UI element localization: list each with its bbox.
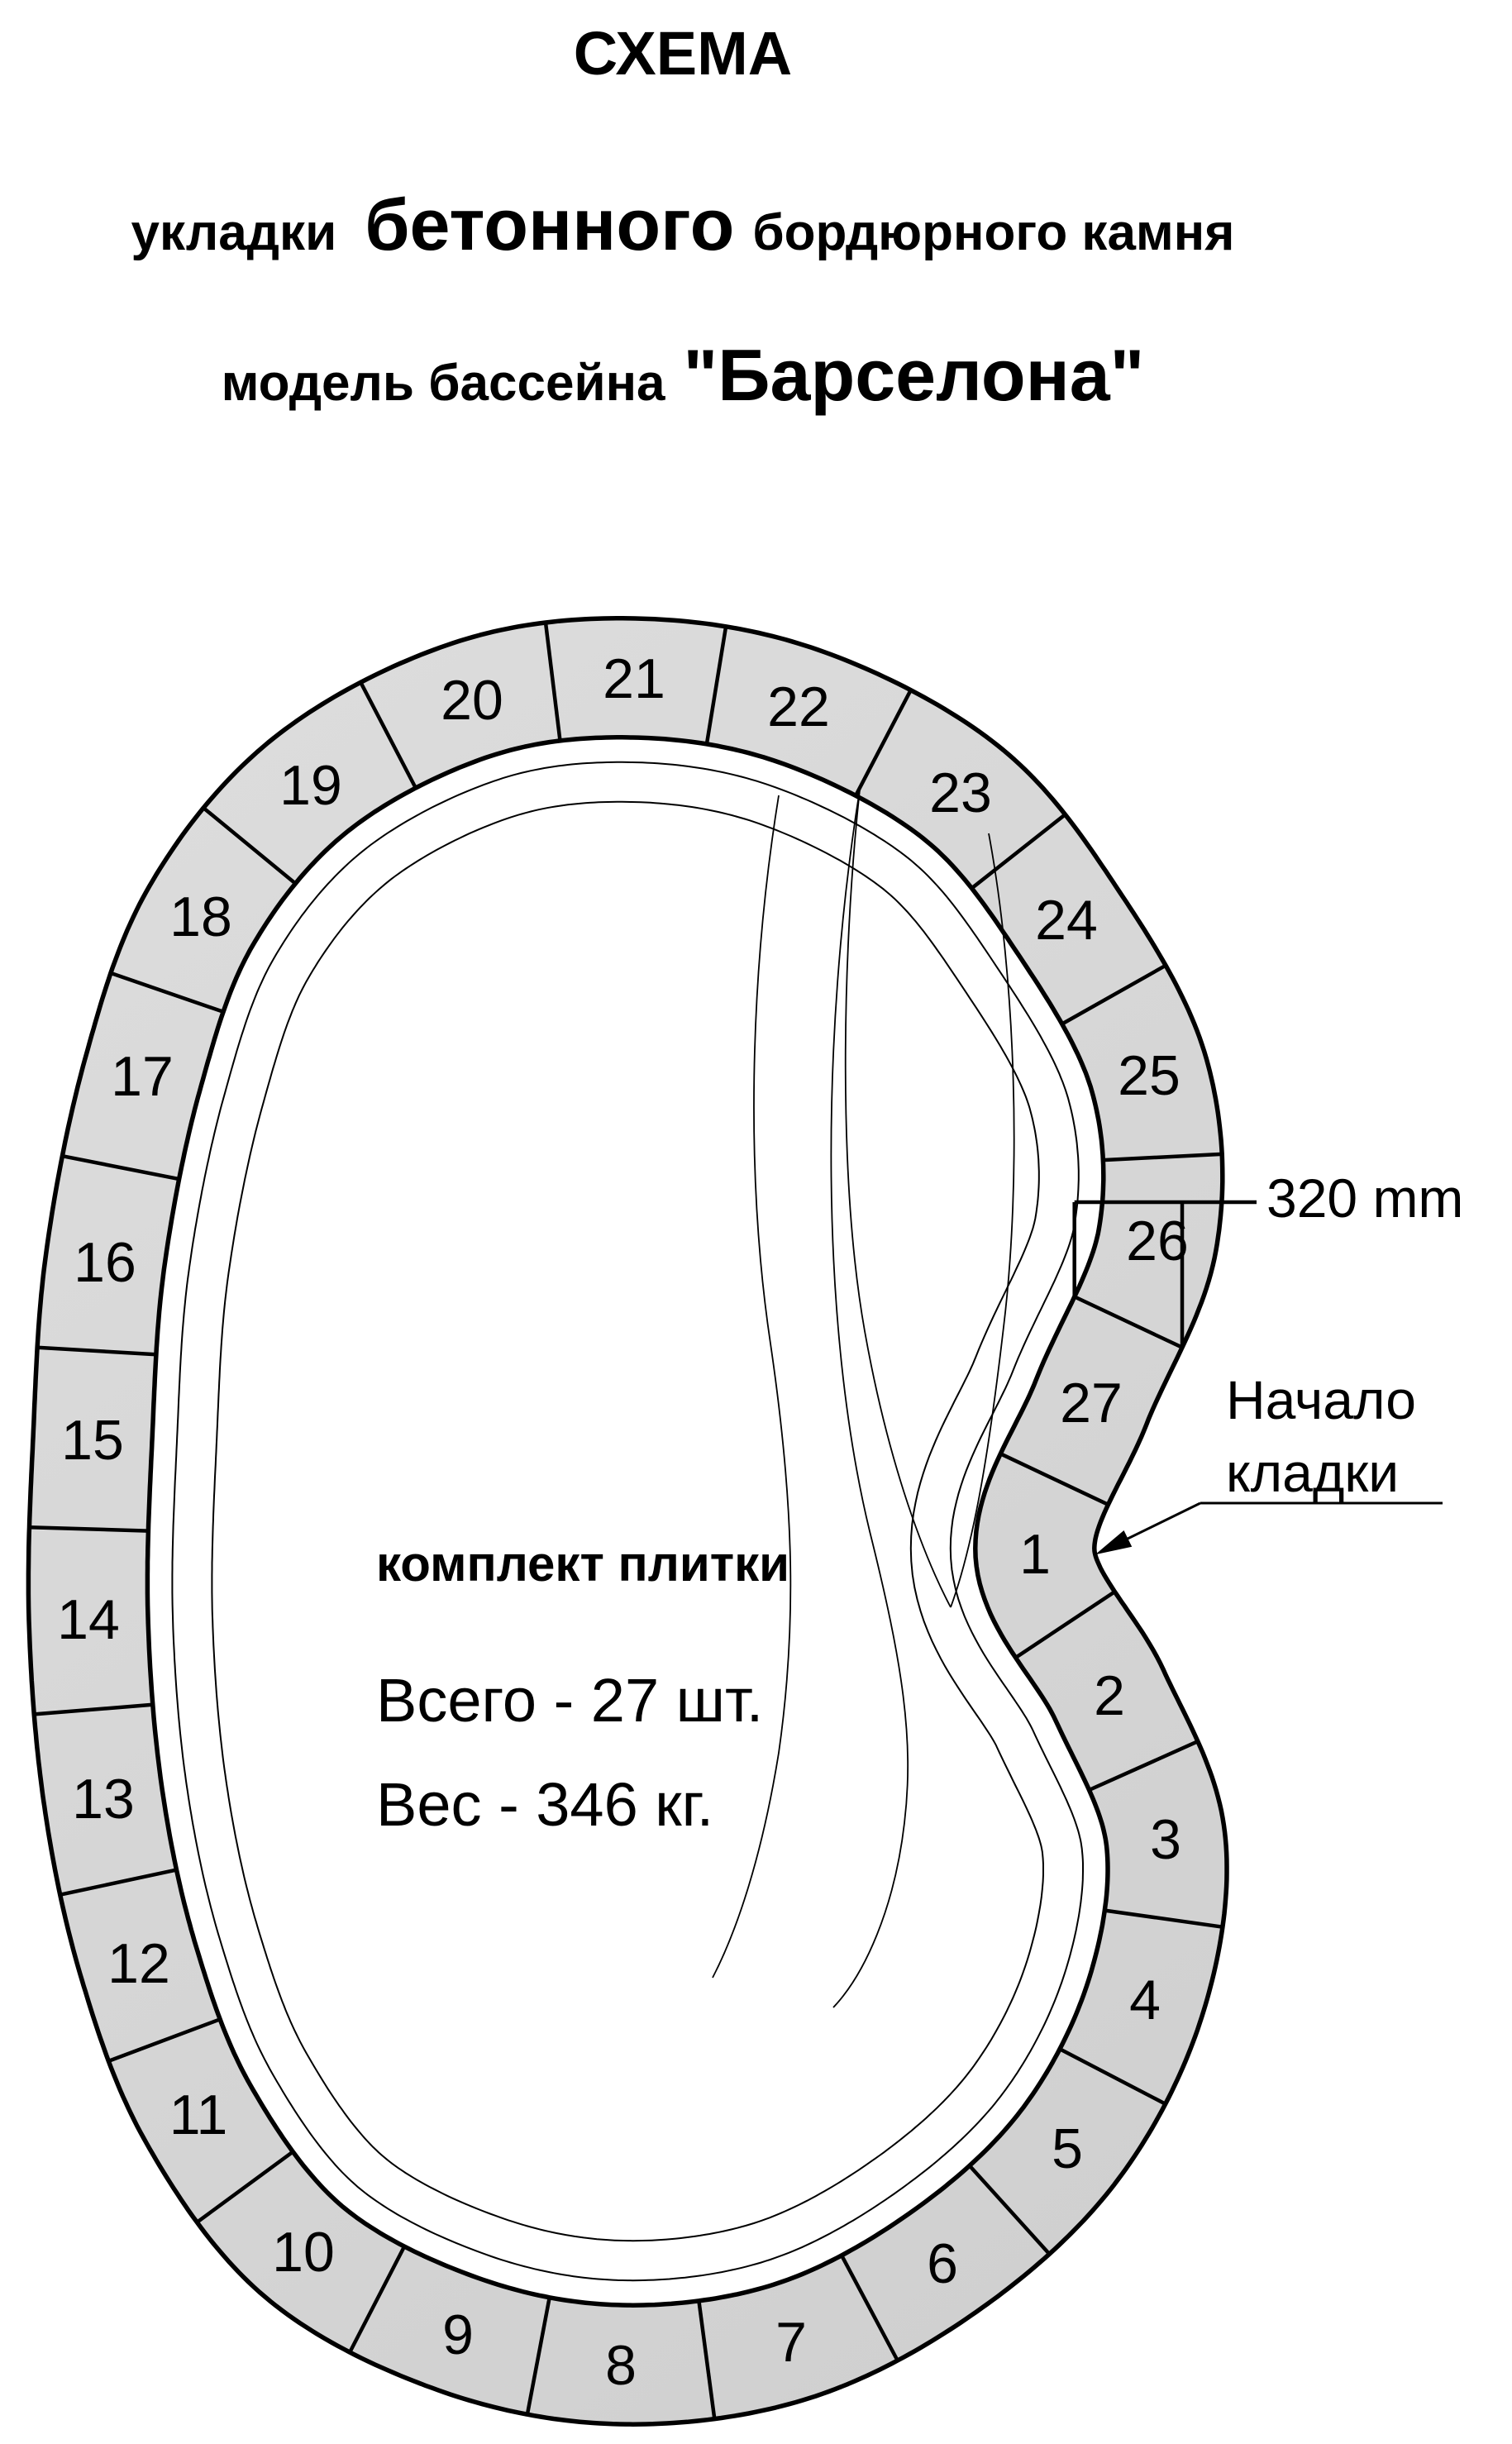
pool-inner-contour-1 [172,762,1083,2280]
tile-number: 17 [111,1045,174,1108]
dimension-label: 320 mm [1266,1167,1463,1229]
tile-number: 27 [1060,1372,1123,1434]
tile-number: 2 [1094,1664,1125,1727]
start-annotation-line2: кладки [1226,1442,1399,1503]
tile-number: 4 [1129,1969,1161,2031]
tile-kit-note: комплект плитки Всего - 27 шт. Вес - 346… [376,1536,789,1839]
tile-number: 18 [169,885,232,948]
subtitle-pre: укладки [131,204,337,261]
pool-scheme-diagram: СХЕМА укладкибетонногобордюрного камня м… [0,0,1512,2444]
kit-total: Всего - 27 шт. [376,1666,763,1735]
tile-number: 1 [1019,1523,1051,1586]
tile-ring: 1234567891011121314151617181920212223242… [28,618,1227,2424]
tile-number: 14 [57,1588,120,1651]
header: СХЕМА укладкибетонногобордюрного камня м… [131,19,1235,416]
tile-number: 7 [775,2311,807,2374]
tile-number: 6 [927,2232,958,2295]
subtitle-post: бордюрного камня [752,204,1234,261]
pool-floor-line [846,790,951,1607]
pool-floor-line [831,790,908,2007]
page-title: СХЕМА [574,19,792,88]
tile-number: 13 [72,1768,135,1831]
subtitle-big: бетонного [365,184,734,265]
model-pre: модель бассейна [222,355,665,412]
tile-number: 22 [767,675,830,738]
kit-heading: комплект плитки [376,1536,789,1592]
tile-number: 20 [441,669,503,732]
pool-floor-line [713,795,790,1978]
scheme-page: СХЕМА укладкибетонногобордюрного камня м… [0,0,1512,2444]
tile-number: 5 [1052,2117,1083,2180]
start-annotation-line1: Начало [1226,1369,1416,1430]
tile-number: 9 [442,2303,474,2366]
annotation-arrowhead [1095,1530,1132,1554]
tile-number: 24 [1035,889,1098,952]
tile-number: 21 [603,647,665,710]
tile-number: 23 [929,761,992,824]
tile-number: 10 [272,2221,335,2284]
tile-number: 15 [61,1409,124,1472]
tile-number: 19 [279,754,342,817]
tile-number: 8 [605,2334,637,2397]
kit-weight: Вес - 346 кг. [376,1770,713,1839]
tile-number: 12 [107,1932,170,1995]
tile-number: 11 [169,2084,228,2146]
tile-number: 25 [1118,1044,1181,1107]
tile-number: 3 [1150,1808,1181,1871]
tile-number: 16 [74,1231,136,1294]
ring-inner-edge [147,737,1108,2305]
pool-floor-lines [713,790,1014,2007]
tile-number: 26 [1126,1210,1189,1272]
page-subtitle: укладкибетонногобордюрного камня [131,184,1235,265]
pool-inner-contour-2 [212,802,1043,2241]
pool-model-line: модель бассейна"Барселона" [222,334,1145,416]
model-big: "Барселона" [684,334,1145,416]
